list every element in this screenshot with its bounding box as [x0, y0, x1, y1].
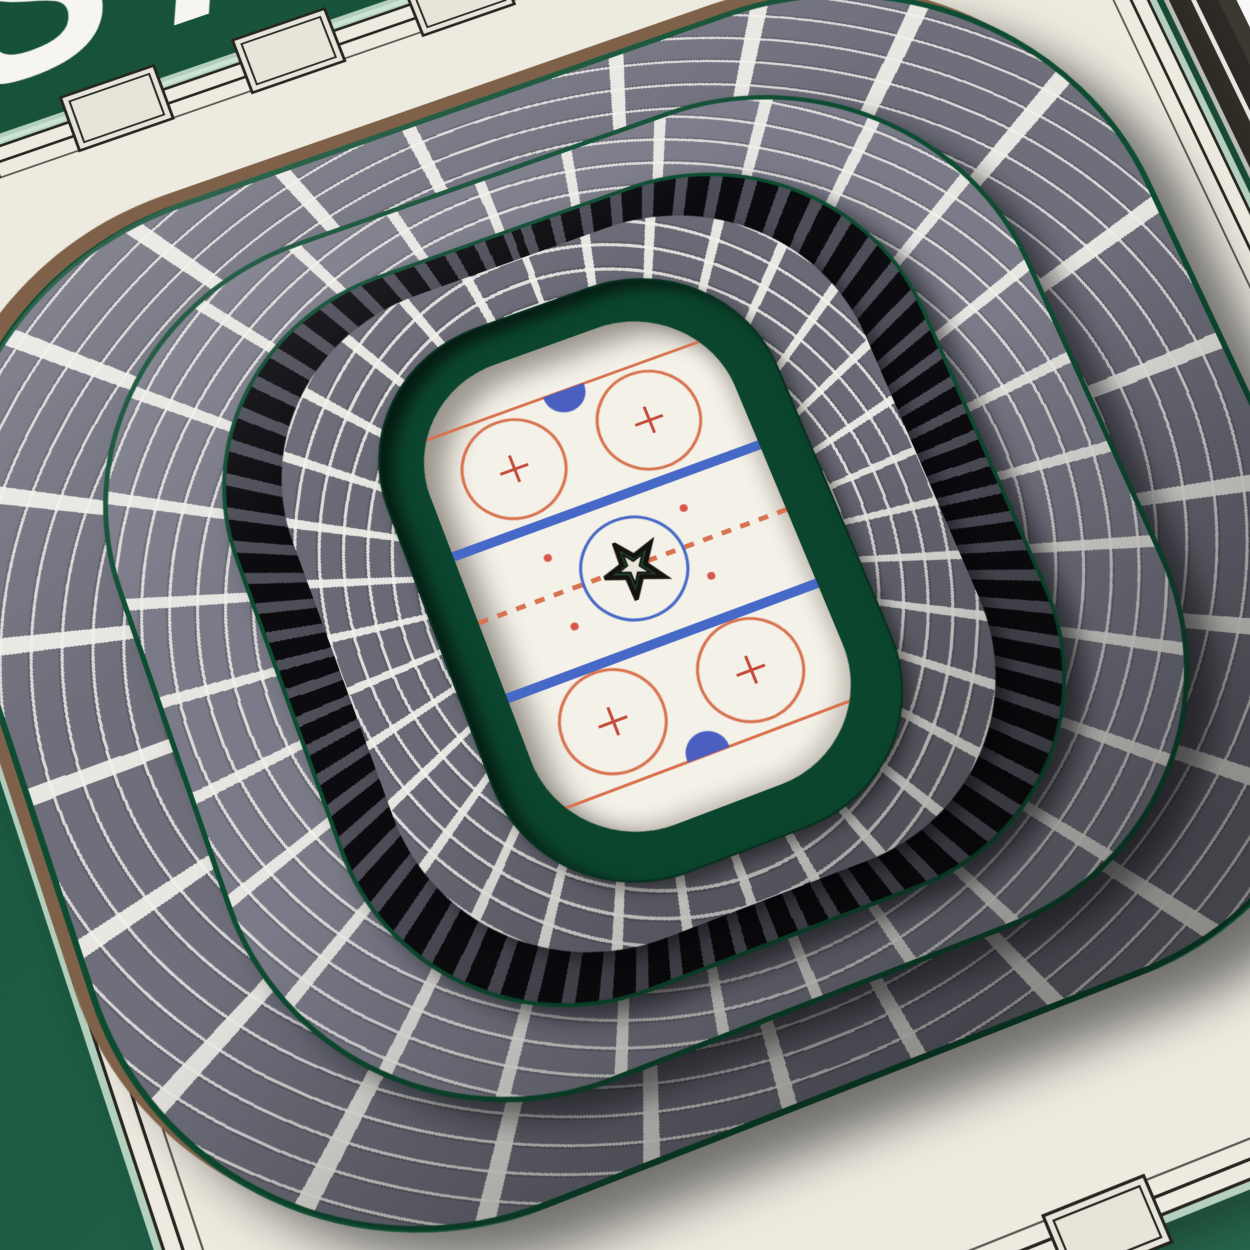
- goal-crease-top: [543, 383, 592, 418]
- product-photo-scene: STA: [0, 0, 1250, 1250]
- faceoff-dot: [569, 621, 579, 631]
- faceoff-dot: [543, 553, 553, 563]
- faceoff-dot: [679, 503, 689, 513]
- artwork-board: STA: [0, 0, 1250, 1250]
- faceoff-dot: [706, 571, 716, 581]
